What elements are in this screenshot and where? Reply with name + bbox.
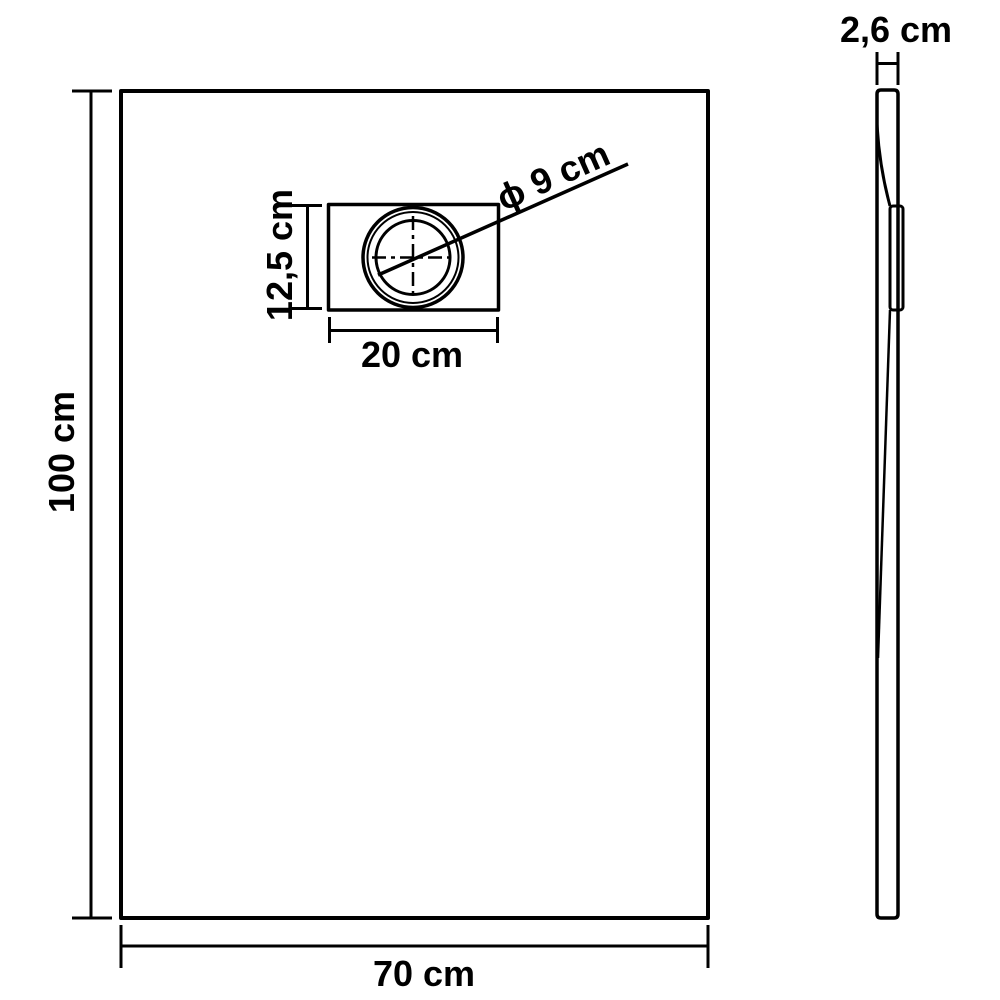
width-dimension: 70 cm <box>121 925 708 994</box>
thickness-dimension-label: 2,6 cm <box>840 9 952 50</box>
width-dimension-label: 70 cm <box>373 953 475 994</box>
side-profile-slope-line <box>878 310 890 658</box>
height-dimension-label: 100 cm <box>41 391 82 513</box>
shower-tray-dimension-diagram: ϕ 9 cm 100 cm 70 cm 12,5 cm <box>0 0 1000 1000</box>
drain-height-dimension-label: 12,5 cm <box>259 189 300 321</box>
drain-width-dimension-label: 20 cm <box>361 334 463 375</box>
drain-height-dimension: 12,5 cm <box>259 189 322 321</box>
drain-detail: ϕ 9 cm <box>329 133 629 310</box>
side-profile-outline <box>877 90 898 918</box>
thickness-dimension: 2,6 cm <box>840 9 952 85</box>
drain-width-dimension: 20 cm <box>329 317 498 375</box>
technical-drawing-canvas: ϕ 9 cm 100 cm 70 cm 12,5 cm <box>0 0 1000 1000</box>
side-view: 2,6 cm <box>840 9 952 918</box>
front-view: ϕ 9 cm 100 cm 70 cm 12,5 cm <box>41 91 708 994</box>
tray-front-outline <box>121 91 708 918</box>
drain-diameter-label: ϕ 9 cm <box>490 133 615 219</box>
height-dimension: 100 cm <box>41 91 112 918</box>
side-profile-slope-curve <box>877 124 890 206</box>
